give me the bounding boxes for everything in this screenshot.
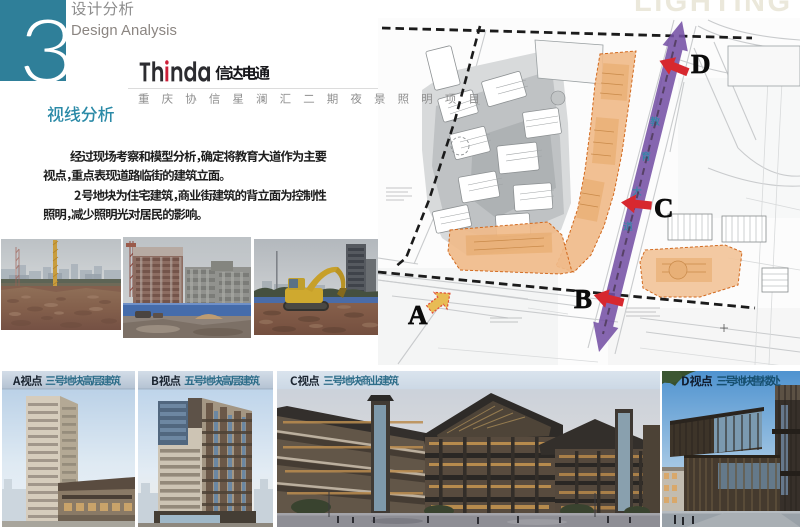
- svg-text:B: B: [574, 284, 592, 314]
- svg-text:D: D: [691, 49, 711, 79]
- svg-text:A: A: [408, 300, 428, 330]
- svg-text:C: C: [654, 193, 674, 223]
